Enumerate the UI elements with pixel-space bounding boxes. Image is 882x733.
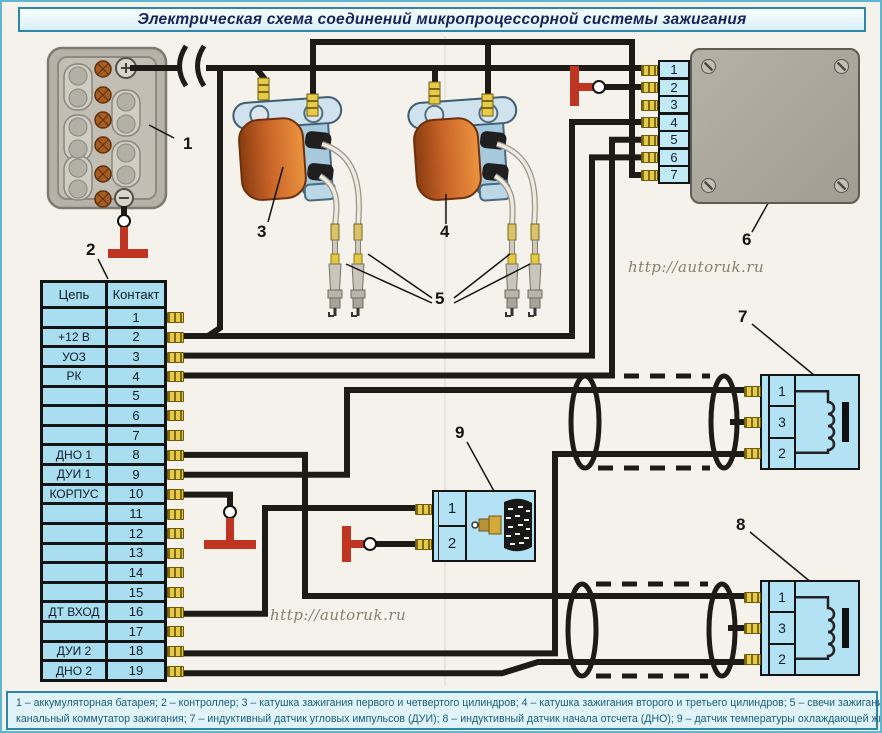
- circuit-name: ДУИ 1: [43, 466, 105, 483]
- connector-row: 17: [43, 623, 164, 640]
- connector-row: ДУИ 2 18: [43, 643, 164, 660]
- contact-number: 2: [778, 445, 786, 461]
- screw-icon: [834, 59, 849, 74]
- contact-number: 6: [670, 150, 677, 165]
- contact-number: 7: [670, 167, 677, 182]
- wire-dno2: [182, 662, 748, 673]
- terminal-pin-icon: [641, 170, 658, 181]
- contact-number: 1: [448, 500, 456, 517]
- terminal-pin-icon: [167, 430, 184, 441]
- battery-plus-terminal: [116, 58, 136, 78]
- battery-minus-terminal: [115, 189, 133, 207]
- contact-number: 3: [778, 620, 786, 636]
- terminal-pin-icon: [167, 587, 184, 598]
- circuit-name: КОРПУС: [43, 486, 105, 503]
- wire-korpus-ground: [182, 495, 230, 506]
- contact-number: 2: [778, 651, 786, 667]
- sensor-temp-contacts: 1 2: [438, 492, 467, 560]
- coil-terminal-pins: [258, 78, 493, 116]
- wire-coil1-supply: [206, 68, 264, 90]
- contact-number: 14: [108, 564, 164, 581]
- contact-number: 2: [448, 535, 456, 552]
- terminal-pin-icon: [415, 504, 432, 515]
- circuit-name: ДНО 1: [43, 446, 105, 463]
- shielded-cable-7: [571, 376, 737, 468]
- watermark: http://autoruk.ru: [270, 606, 406, 624]
- contact-number: 19: [108, 662, 164, 679]
- terminal-pin-icon: [744, 386, 761, 397]
- terminal-pin-icon: [744, 654, 761, 665]
- circuit-name: [43, 545, 105, 562]
- terminal-pin-icon: [641, 65, 658, 76]
- terminal-pin-icon: [744, 592, 761, 603]
- contact-number: 1: [778, 589, 786, 605]
- connector-row: УОЗ 3: [43, 348, 164, 365]
- wire-rk: [182, 140, 647, 376]
- wire-plus12-controller: [182, 68, 220, 336]
- callout-sensor-temp: 9: [455, 423, 464, 443]
- sensor-contact: 3: [770, 611, 794, 642]
- sensor-contact: 1: [770, 582, 794, 611]
- callout-sensor-dui: 7: [738, 307, 747, 327]
- terminal-pin-icon: [167, 626, 184, 637]
- terminal-pin-icon: [167, 332, 184, 343]
- connector-row: РК 4: [43, 368, 164, 385]
- contact-number: 12: [108, 525, 164, 542]
- terminal-pin-icon: [167, 567, 184, 578]
- circuit-name: +12 В: [43, 329, 105, 346]
- connector-row: ДНО 2 19: [43, 662, 164, 679]
- circuit-name: [43, 584, 105, 601]
- contact-number: 4: [670, 115, 677, 130]
- contact-number: 8: [108, 446, 164, 463]
- terminal-pin-icon: [167, 410, 184, 421]
- circuit-name: [43, 525, 105, 542]
- shielded-cable-8: [568, 584, 735, 676]
- sensor-dui-contacts: 1 3 2: [768, 376, 796, 468]
- sensor-dui: 1 3 2: [760, 374, 860, 470]
- ignition-coil-1-4: [232, 96, 358, 226]
- terminal-pin-icon: [167, 509, 184, 520]
- terminal-pin-icon: [641, 152, 658, 163]
- sensor-temp: 1 2: [432, 490, 536, 562]
- sensor-contact: 2: [770, 437, 794, 468]
- contact-number: 3: [778, 414, 786, 430]
- connector-row: 14: [43, 564, 164, 581]
- circuit-name: [43, 623, 105, 640]
- connector-row: ДНО 1 8: [43, 446, 164, 463]
- ignition-coil-2-3: [407, 96, 534, 226]
- battery-illustration: [48, 48, 166, 208]
- contact-number: 3: [108, 348, 164, 365]
- connector-row: 15: [43, 584, 164, 601]
- terminal-pin-icon: [415, 539, 432, 550]
- terminal-pin-icon: [641, 100, 658, 111]
- sensor-contact: 1: [770, 376, 794, 405]
- callout-sensor-dno: 8: [736, 515, 745, 535]
- sensor-contact: 2: [439, 525, 465, 560]
- table-header: Цепь Контакт: [43, 283, 164, 306]
- connector-row: +12 В 2: [43, 329, 164, 346]
- connector-row: 7: [43, 427, 164, 444]
- connector-row: 5: [43, 388, 164, 405]
- contact-number: 5: [108, 388, 164, 405]
- sensor-dno: 1 3 2: [760, 580, 860, 676]
- commutator-contact: 6: [660, 150, 688, 165]
- connector-row: КОРПУС 10: [43, 486, 164, 503]
- terminal-pin-icon: [167, 646, 184, 657]
- callout-battery: 1: [183, 134, 192, 154]
- commutator-contact: 7: [660, 167, 688, 182]
- terminal-pin-icon: [167, 548, 184, 559]
- terminal-pin-icon: [641, 135, 658, 146]
- terminal-pin-icon: [744, 623, 761, 634]
- terminal-pin-icon: [167, 469, 184, 480]
- screw-icon: [701, 178, 716, 193]
- connector-row: 1: [43, 309, 164, 326]
- terminal-pin-icon: [167, 528, 184, 539]
- sensor-dno-contacts: 1 3 2: [768, 582, 796, 674]
- terminal-pin-icon: [167, 312, 184, 323]
- wire-break-icon: [180, 46, 205, 86]
- commutator-contact: 5: [660, 132, 688, 147]
- contact-number: 1: [108, 309, 164, 326]
- circuit-name: УОЗ: [43, 348, 105, 365]
- sensor-contact: 2: [770, 643, 794, 674]
- screw-icon: [701, 59, 716, 74]
- wire-dt-input: [182, 508, 422, 614]
- terminal-pin-icon: [167, 371, 184, 382]
- terminal-pin-icon: [641, 117, 658, 128]
- callout-coil-2-3: 4: [440, 222, 449, 242]
- circuit-name: [43, 564, 105, 581]
- inductor-symbol-icon: [796, 376, 860, 468]
- terminal-pin-icon: [744, 417, 761, 428]
- commutator-contact: 1: [660, 62, 688, 77]
- terminal-pin-icon: [167, 666, 184, 677]
- contact-number: 11: [108, 505, 164, 522]
- contact-number: 4: [108, 368, 164, 385]
- commutator-contact: 4: [660, 115, 688, 130]
- wire-coil-control-bus: [313, 42, 647, 175]
- contact-number: 2: [108, 329, 164, 346]
- callout-controller: 2: [86, 240, 95, 260]
- table-body: 1 +12 В 2 УОЗ 3 РК 4: [43, 309, 164, 679]
- connector-row: 12: [43, 525, 164, 542]
- circuit-name: [43, 407, 105, 424]
- contact-number: 17: [108, 623, 164, 640]
- circuit-name: [43, 505, 105, 522]
- wire-dui1: [182, 390, 748, 475]
- watermark: http://autoruk.ru: [628, 258, 764, 276]
- contact-number: 1: [670, 62, 677, 77]
- callout-commutator: 6: [742, 230, 751, 250]
- contact-number: 5: [670, 132, 677, 147]
- callout-spark-plugs: 5: [435, 289, 444, 309]
- inductor-symbol-icon: [796, 582, 860, 674]
- circuit-name: ДТ ВХОД: [43, 603, 105, 620]
- commutator-box: [690, 48, 860, 204]
- terminal-pin-icon: [167, 450, 184, 461]
- terminal-pin-icon: [167, 352, 184, 363]
- terminal-pin-icon: [167, 607, 184, 618]
- header-contact: Контакт: [108, 283, 164, 306]
- connector-row: 6: [43, 407, 164, 424]
- legend-caption: 1 – аккумуляторная батарея; 2 – контролл…: [6, 691, 878, 730]
- legend-line-1: 1 – аккумуляторная батарея; 2 – контролл…: [16, 696, 868, 712]
- header-circuit: Цепь: [43, 283, 105, 306]
- sensor-contact: 3: [770, 405, 794, 436]
- schematic-page: Электрическая схема соединений микропроц…: [0, 0, 882, 733]
- contact-number: 1: [778, 383, 786, 399]
- legend-line-2: канальный коммутатор зажигания; 7 – инду…: [16, 712, 868, 728]
- contact-number: 7: [108, 427, 164, 444]
- contact-number: 15: [108, 584, 164, 601]
- commutator-contact: 2: [660, 80, 688, 95]
- commutator-contacts: 1 2 3 4 5 6: [658, 60, 690, 184]
- terminal-pin-icon: [167, 489, 184, 500]
- wire-uoz: [182, 157, 647, 355]
- terminal-pin-icon: [641, 82, 658, 93]
- connector-row: 11: [43, 505, 164, 522]
- terminal-pin-icon: [167, 391, 184, 402]
- connector-row: ДТ ВХОД 16: [43, 603, 164, 620]
- connector-row: 13: [43, 545, 164, 562]
- contact-number: 3: [670, 97, 677, 112]
- circuit-name: ДНО 2: [43, 662, 105, 679]
- contact-number: 6: [108, 407, 164, 424]
- contact-number: 18: [108, 643, 164, 660]
- circuit-name: ДУИ 2: [43, 643, 105, 660]
- screw-icon: [834, 178, 849, 193]
- wire-plus12-commutator: [182, 122, 647, 336]
- page-title: Электрическая схема соединений микропроц…: [18, 7, 866, 32]
- contact-number: 13: [108, 545, 164, 562]
- contact-number: 2: [670, 80, 677, 95]
- scan-seam: [444, 36, 446, 686]
- circuit-name: [43, 309, 105, 326]
- circuit-name: РК: [43, 368, 105, 385]
- controller-connector-table: Цепь Контакт 1 +12 В 2 УОЗ 3: [40, 280, 167, 682]
- terminal-pin-icon: [744, 448, 761, 459]
- circuit-name: [43, 427, 105, 444]
- circuit-name: [43, 388, 105, 405]
- contact-number: 16: [108, 603, 164, 620]
- contact-number: 10: [108, 486, 164, 503]
- callout-coil-1-4: 3: [257, 222, 266, 242]
- contact-number: 9: [108, 466, 164, 483]
- temp-sensor-icon: [470, 494, 534, 560]
- sensor-contact: 1: [439, 492, 465, 525]
- commutator-contact: 3: [660, 97, 688, 112]
- connector-row: ДУИ 1 9: [43, 466, 164, 483]
